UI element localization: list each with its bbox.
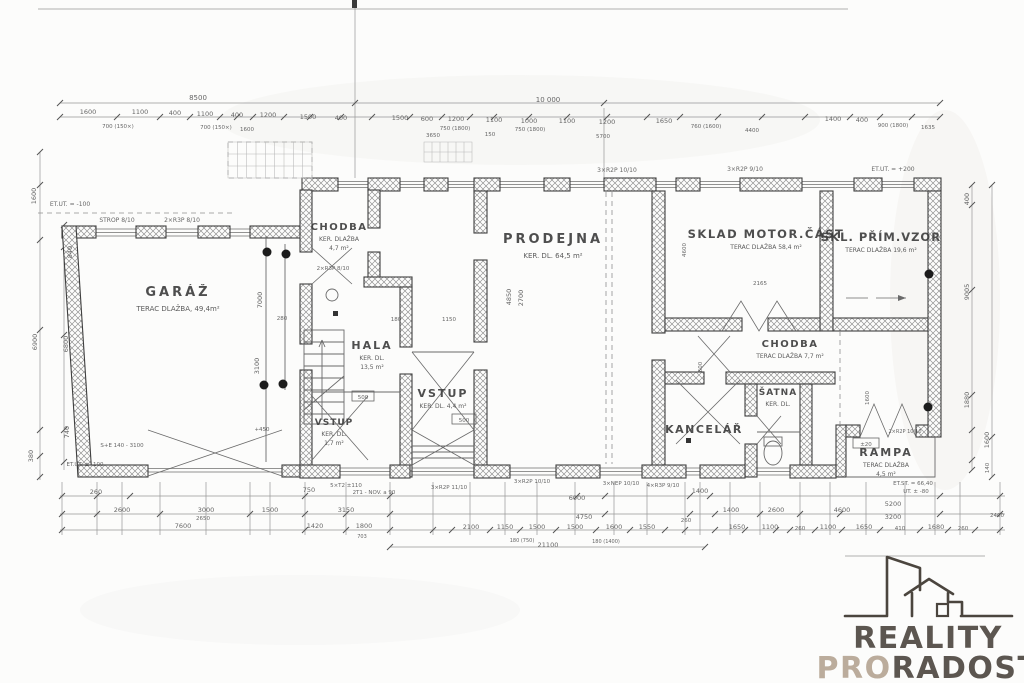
dim-text: 1880 [963,392,971,409]
dim-text: 1500 [262,506,279,514]
dim-text: 2700 [517,290,525,307]
dim-text: 1600 [983,432,991,449]
dim-text: 750 [303,486,315,494]
dim-text: UT. ± -80 [903,489,929,495]
dim-text: ET.ST. = 66,40 [893,481,933,487]
room-sublabel: TERAC DLAŽBA, 49,4m² [135,304,220,313]
dim-text: 1500 [567,523,584,531]
dim-text: 180 (750) [510,538,535,544]
room-sublabel: TERAC DLAŽBA 7,7 m² [755,352,824,360]
dim-text: 740 [63,426,71,438]
dim-text: 7000 [256,292,264,309]
dim-text: 1680 [928,523,945,531]
dim-text: 3×R2P 10/10 [597,167,637,174]
column-dot [263,248,272,257]
room-sublabel: KER. DLAŽBA [319,235,360,243]
dim-text: 1150 [497,523,514,531]
dim-text: 2400 [990,513,1004,519]
dim-text: ±20 [860,442,872,448]
dim-text: 400 [169,109,181,117]
dim-text: 750 (1800) [440,126,471,132]
dim-text: 180 (1400) [592,539,620,545]
dim-text: 4750 [576,513,593,521]
dim-text: 2600 [768,506,785,514]
dim-text: 1100 [762,523,779,531]
dim-text: 3100 [253,358,261,375]
dim-text: 2100 [463,523,480,531]
dim-text: 750 (1800) [515,127,546,133]
dim-text: 2×R3P 8/10 [164,217,200,224]
dim-text: 600 [698,361,704,372]
dim-text: S+E 140 - 3100 [100,443,144,449]
dim-text: 400 [335,114,347,122]
dim-text: 1400 [692,487,709,495]
room-label: SKL. PŘÍM.VZOR [821,229,941,244]
room-label: GARÁŽ [145,284,210,300]
dim-text: 3200 [885,513,902,521]
dim-text: 140 [985,462,991,473]
dim-text: 703 [357,534,367,540]
dim-text: 3000 [198,506,215,514]
dim-text: 2×R2P 10/10 [888,429,921,435]
dim-text: 410 [895,526,906,532]
logo-skyline [845,557,1012,616]
scan-mark [352,0,357,8]
room-sublabel: KER. DL. 64,5 m² [523,252,582,260]
dim-text: 9005 [963,284,971,301]
room-sublabel: KER. DL. [359,355,384,362]
dim-text: 1100 [486,116,503,124]
dim-text: 400 [231,111,243,119]
dim-text: 5200 [885,500,902,508]
column-dot [260,381,269,390]
floor-plan-drawing: GARÁŽTERAC DLAŽBA, 49,4m²CHODBAKER. DLAŽ… [0,0,1024,683]
room-label: CHODBA [762,339,819,350]
dim-text: 2650 [196,516,210,522]
dim-text: 1635 [921,125,935,131]
dim-text: 1600 [240,127,254,133]
dim-text: 900 (1800) [878,123,909,129]
dim-text: 1100 [132,108,149,116]
fixtures [326,289,782,465]
room-label: HALA [351,339,392,352]
dim-text: 700 (150×) [200,125,232,131]
dim-text: 1550 [639,523,656,531]
flue-mark [686,438,691,443]
dim-text: 400 [856,116,868,124]
dim-text: 1200 [260,111,277,119]
dim-text: 760 (1600) [691,124,722,130]
dim-text: 7600 [175,522,192,530]
dim-text: 4×R3P 9/10 [647,483,680,489]
dim-text: 400 [963,193,971,205]
dim-text: 4600 [682,243,688,257]
dim-text: 260 [958,526,969,532]
dim-text: 1400 [825,115,842,123]
dim-text: 180 [391,317,402,323]
column-dot [279,380,288,389]
logo-proradost: PRORADOST [817,651,1024,683]
logo-door [937,604,948,616]
room-sublabel: 4,7 m² [329,245,349,252]
room-label: ŠATNA [759,386,797,398]
dim-text: ET.UT. = -100 [50,201,91,208]
dim-text: 500 [459,418,470,424]
room-sublabel: KER. DL. [321,431,346,438]
dim-text: 840 [66,246,74,258]
paper-shading [80,75,1000,645]
dim-text: 280 [277,316,288,322]
room-sublabel: 13,5 m² [360,364,384,371]
dim-text: 1100 [820,523,837,531]
column-dot [925,270,934,279]
room-sublabel: TERAC DLAŽBA 58,4 m² [729,243,802,251]
dim-text: 1100 [197,110,214,118]
dim-text: 3×NEP 10/10 [603,481,640,487]
dim-text: 380 [27,450,35,462]
dim-text: 500 [358,395,369,401]
dim-text: 1500 [392,114,409,122]
room-sublabel: 1,7 m² [324,440,344,447]
dim-text: ET.UT. = +200 [871,166,914,173]
room-label: PRODEJNA [503,232,603,247]
dim-text: 3×R2P 10/10 [514,479,551,485]
room-label: VSTUP [315,418,354,428]
dim-text: 1200 [599,118,616,126]
dim-text: 1150 [442,317,456,323]
dim-text: 3×R2P 11/10 [431,485,468,491]
fixture-circle [326,289,338,301]
toilet [764,441,782,465]
dim-text: 4850 [505,289,513,306]
room-label: VSTUP [418,387,469,400]
dim-text: 4400 [745,128,759,134]
dim-text: 1600 [30,188,38,205]
dim-text: 3150 [338,506,355,514]
column-dot [282,250,291,259]
dim-text: 1500 [300,113,317,121]
dim-text: 1420 [307,522,324,530]
dim-text: 8500 [189,94,207,102]
logo: REALITY PRORADOST [817,557,1024,683]
room-label: CHODBA [311,222,368,233]
dim-text: 150 [485,132,496,138]
dim-text: 2600 [114,506,131,514]
dim-text: ET.UT. ± -100 [67,462,104,468]
dim-text: 700 (150×) [102,124,134,130]
floor-plan-scan: GARÁŽTERAC DLAŽBA, 49,4m²CHODBAKER. DLAŽ… [0,0,1024,683]
dim-text: 1650 [656,117,673,125]
dim-text: 21100 [538,541,559,549]
dim-text: 600 [421,115,433,123]
dim-text: 1200 [448,115,465,123]
dim-text: 6800 [62,336,70,353]
dim-text: 1650 [729,523,746,531]
dim-text: 3650 [426,133,440,139]
dim-text: 260 [795,526,806,532]
dim-text: 2165 [753,281,767,287]
dim-text: 5700 [596,134,610,140]
dim-text: 2T1 - NOV. a 90 [353,490,396,496]
dim-text: 2×R3P 8/10 [317,266,350,272]
room-sublabel: 4,5 m² [876,471,896,478]
dim-text: 1400 [723,506,740,514]
room-sublabel: KER. DL. 4,4 m² [420,403,468,410]
dim-text: 1650 [856,523,873,531]
dim-text: 1500 [529,523,546,531]
logo-pro: PRO [817,651,892,683]
dim-text: 1600 [865,391,871,405]
dim-text: 5×T2 ±110 [330,483,362,489]
logo-radost: RADOST [892,651,1024,683]
dim-text: 3×R2P 9/10 [727,166,763,173]
room-label: KANCELÁŘ [665,423,743,436]
dim-text: 1800 [356,522,373,530]
dim-text: 1600 [606,523,623,531]
dim-text: 1100 [559,117,576,125]
dim-text: 6000 [569,494,586,502]
dim-text: +450 [254,427,270,433]
room-sublabel: TERAC DLAŽBA 19,6 m² [844,246,917,254]
dim-text: STROP 8/10 [99,217,135,224]
dim-text: 260 [681,518,692,524]
dim-text: 6900 [31,334,39,351]
dim-text: 10 000 [536,96,561,104]
room-sublabel: TERAC DLAŽBA [862,461,910,469]
dim-text: 260 [90,488,102,496]
column-dot [924,403,933,412]
dim-text: 1600 [80,108,97,116]
dim-text: 1000 [521,117,538,125]
room-sublabel: KER. DL. [765,401,790,408]
flue-mark [333,311,338,316]
dim-text: 4600 [834,506,851,514]
